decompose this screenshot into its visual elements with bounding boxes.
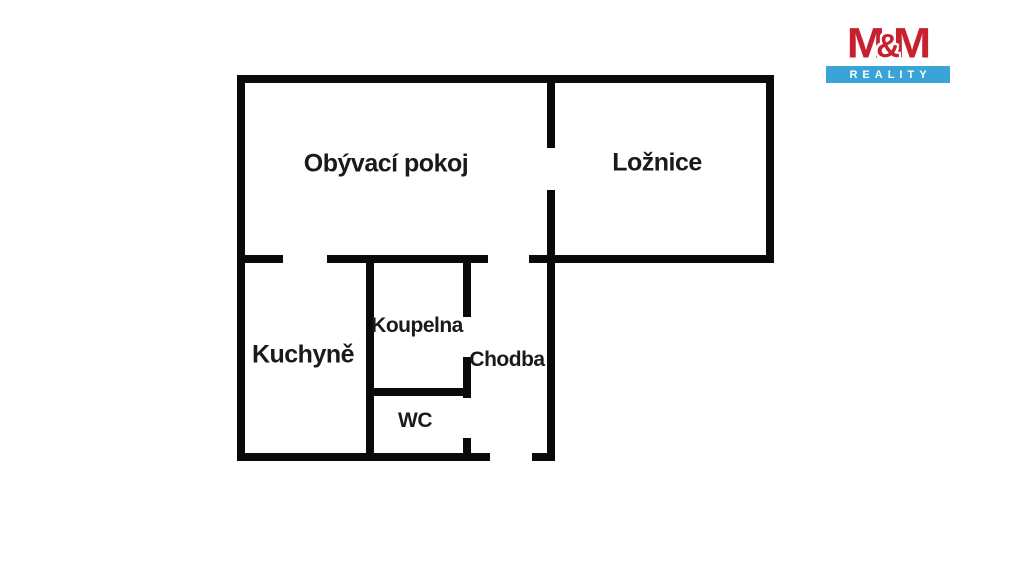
- wall-kitchen-bathroom: [366, 255, 374, 461]
- mm-reality-logo: M & M REALITY: [826, 20, 950, 83]
- floor-plan: Obývací pokoj Ložnice Kuchyně Koupelna C…: [0, 0, 1024, 576]
- wall-exterior-left: [237, 75, 245, 461]
- wall-exterior-top: [237, 75, 774, 83]
- wall-exterior-right: [766, 75, 774, 262]
- logo-tagline: REALITY: [826, 66, 950, 83]
- wall-bathroom-hall-upper: [463, 255, 471, 317]
- room-label-kuchyne: Kuchyně: [252, 341, 354, 370]
- wall-exterior-bottom-left: [237, 453, 490, 461]
- room-label-wc: WC: [398, 409, 432, 433]
- room-label-koupelna: Koupelna: [371, 314, 463, 338]
- room-label-obyvaci-pokoj: Obývací pokoj: [304, 150, 468, 179]
- wall-livingroom-bedroom-upper: [547, 75, 555, 148]
- wall-livingroom-bottom-left: [237, 255, 283, 263]
- wall-bedroom-bottom: [529, 255, 774, 263]
- room-label-loznice: Ložnice: [612, 149, 702, 178]
- wall-wc-hall: [463, 438, 471, 461]
- logo-brand-text: M & M: [826, 20, 950, 66]
- wall-bathroom-wc: [366, 388, 467, 396]
- logo-ampersand: &: [876, 29, 900, 62]
- room-label-chodba: Chodba: [469, 348, 544, 372]
- wall-livingroom-bedroom-lower: [547, 190, 555, 461]
